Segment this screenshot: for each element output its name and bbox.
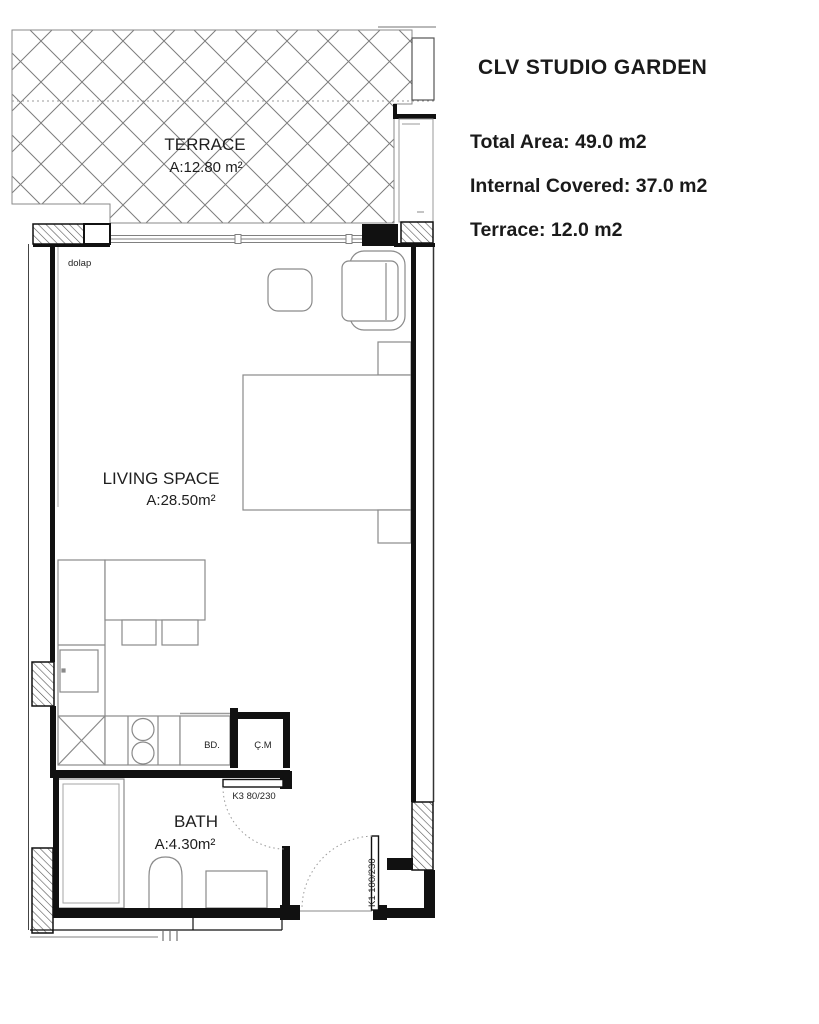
terrace-window	[110, 235, 362, 244]
door-frame	[280, 905, 300, 920]
total-area-stat: Total Area: 49.0 m2	[470, 131, 707, 154]
area-stats: Total Area: 49.0 m2 Internal Covered: 37…	[470, 131, 707, 242]
nightstand-bottom	[378, 510, 411, 543]
side-table	[268, 269, 312, 311]
wall-segment	[282, 846, 290, 908]
stove-burner	[132, 719, 154, 741]
shower-tub-inner	[63, 784, 119, 903]
sink-tap	[62, 669, 65, 672]
bath-door-leaf	[223, 780, 283, 788]
wall-segment	[33, 244, 110, 247]
wall-segment	[387, 908, 435, 918]
bath-area-label: A:4.30m²	[155, 836, 216, 853]
nightstand-top	[378, 342, 411, 375]
bd-label: BD.	[204, 740, 220, 751]
wall-segment	[411, 245, 416, 802]
adjacent-column	[412, 38, 434, 100]
internal-covered-stat: Internal Covered: 37.0 m2	[470, 175, 707, 198]
bath-bottom-wall	[53, 908, 282, 918]
closet-label: dolap	[68, 258, 91, 269]
niche-wall	[230, 708, 238, 768]
bath-label: BATH	[174, 812, 218, 831]
entry-door-swing-arc	[302, 836, 372, 908]
window-mullion	[346, 235, 352, 244]
terrace-deck-hatch	[12, 30, 412, 223]
bed	[243, 375, 411, 510]
armchair-seat	[342, 261, 398, 321]
insulated-wall-block	[412, 802, 433, 870]
kitchen-sink	[60, 650, 98, 692]
terrace-stat: Terrace: 12.0 m2	[470, 219, 707, 242]
dining-table	[105, 560, 205, 620]
wall-segment	[50, 706, 56, 778]
stove-burner	[132, 742, 154, 764]
living-furniture	[58, 247, 411, 543]
chair-left	[122, 620, 156, 645]
kitchen	[58, 560, 230, 765]
wall-segment	[50, 244, 55, 662]
insulated-wall-block	[401, 222, 433, 243]
living-space-label: LIVING SPACE	[103, 469, 220, 488]
window-mullion	[235, 235, 241, 244]
living-space-area-label: A:28.50m²	[146, 492, 215, 509]
wall-segment	[393, 114, 436, 119]
insulated-wall-block	[32, 662, 54, 706]
wall-column	[84, 224, 110, 244]
bath-door-tag: K3 80/230	[232, 791, 275, 802]
terrace-area-label: A:12.80 m²	[169, 159, 242, 176]
adjacent-window-bay	[399, 119, 433, 222]
washing-machine-label: Ç.M	[254, 740, 272, 751]
terrace-label: TERRACE	[164, 135, 245, 154]
wall-segment	[362, 224, 398, 246]
entry-door-tag: K1 100/230	[367, 858, 378, 907]
step-ticks	[163, 931, 177, 941]
insulated-wall-block	[32, 848, 53, 933]
floor-plan-page: TERRACE A:12.80 m²	[0, 0, 819, 1024]
plan-title: CLV STUDIO GARDEN	[478, 56, 707, 80]
wall-segment	[387, 858, 413, 870]
bath-top-wall	[53, 770, 290, 778]
insulated-wall-block	[33, 224, 84, 244]
chair-right	[162, 620, 198, 645]
wash-basin	[206, 871, 267, 908]
niche-wall	[238, 712, 290, 719]
terrace-area: TERRACE A:12.80 m²	[12, 27, 436, 223]
niche-wall	[283, 719, 290, 768]
wall-segment	[53, 778, 59, 910]
floor-plan-drawing: TERRACE A:12.80 m²	[0, 0, 460, 1024]
toilet	[149, 857, 182, 908]
